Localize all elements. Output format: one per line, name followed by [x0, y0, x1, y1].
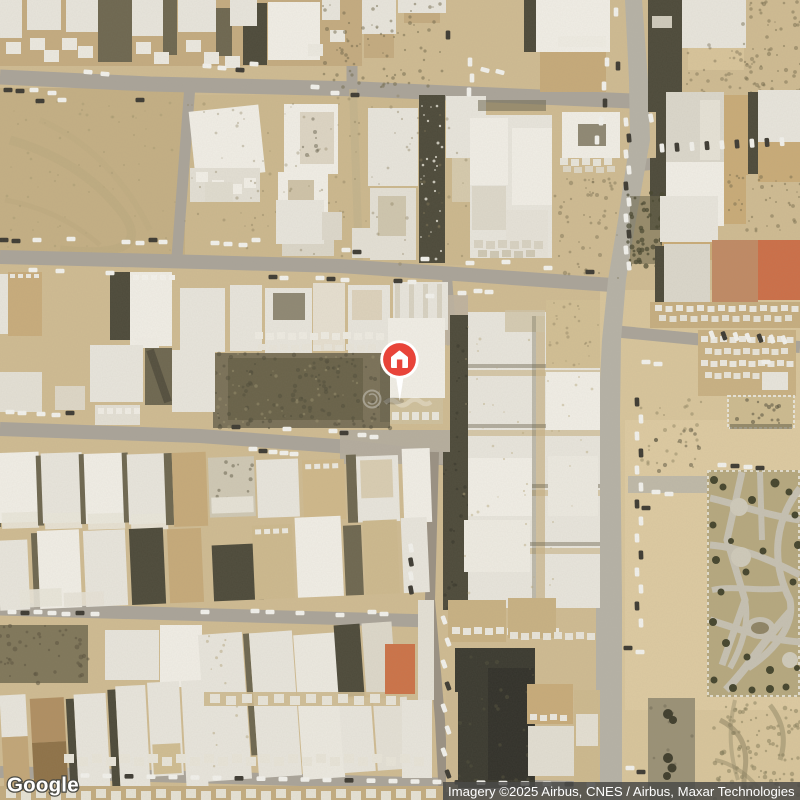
svg-text:Imagery ©2025 Airbus, CNES / A: Imagery ©2025 Airbus, CNES / Airbus, Max… [448, 784, 795, 799]
svg-text:Google: Google [7, 774, 79, 797]
